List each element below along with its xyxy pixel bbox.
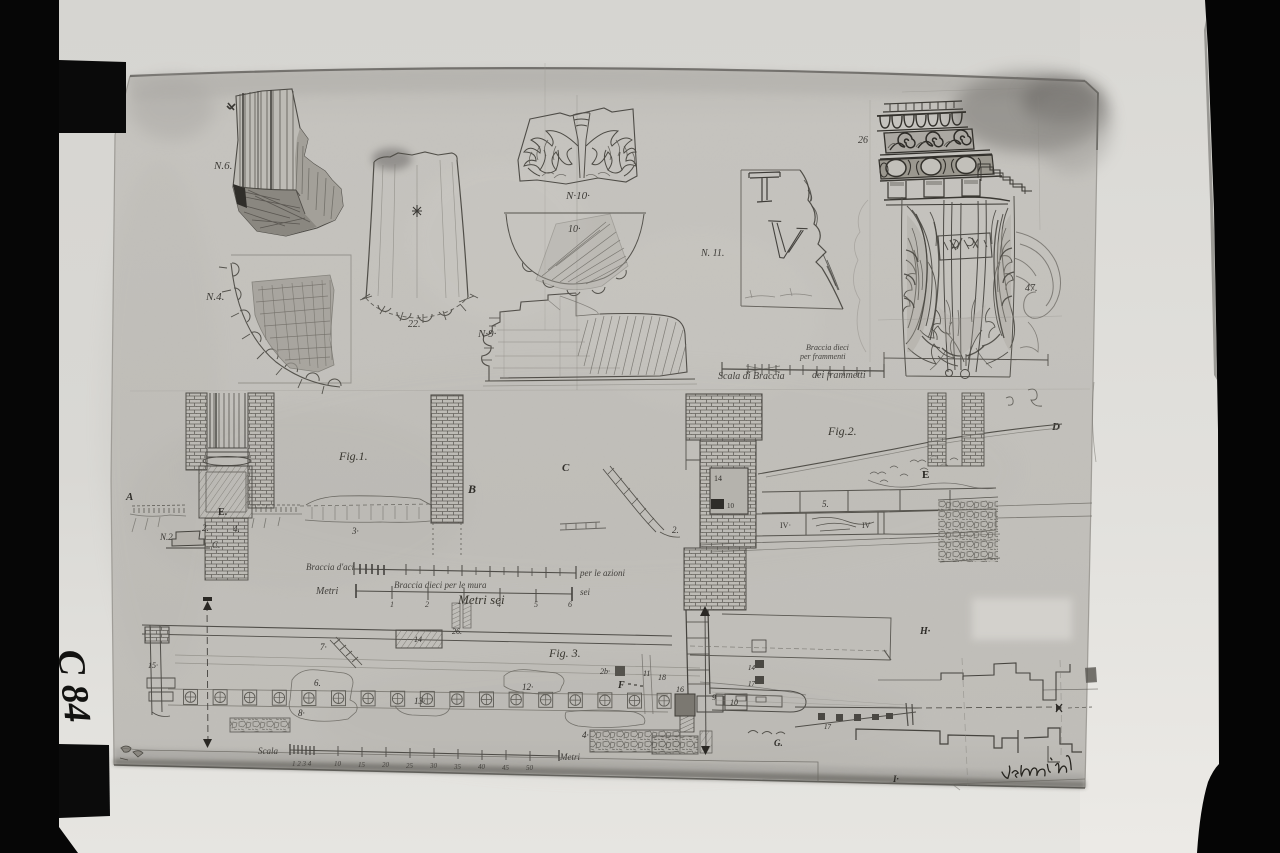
svg-text:18: 18 xyxy=(658,673,666,682)
svg-text:Fig. 3.: Fig. 3. xyxy=(548,646,581,660)
svg-text:E.: E. xyxy=(218,507,228,518)
svg-text:Scala: Scala xyxy=(258,746,278,756)
svg-text:10: 10 xyxy=(727,502,735,510)
svg-text:4: 4 xyxy=(497,600,501,609)
svg-text:10: 10 xyxy=(334,760,342,768)
svg-text:N.6.: N.6. xyxy=(213,160,232,172)
svg-text:Fig.1.: Fig.1. xyxy=(338,449,368,463)
svg-text:7·: 7· xyxy=(320,642,327,652)
svg-text:Metri: Metri xyxy=(315,586,338,597)
svg-text:50: 50 xyxy=(526,764,534,772)
svg-text:N.4.: N.4. xyxy=(205,291,224,303)
svg-text:3·: 3· xyxy=(351,526,359,536)
svg-text:Fig.2.: Fig.2. xyxy=(827,424,857,438)
svg-text:N.2: N.2 xyxy=(159,532,173,542)
svg-text:5.: 5. xyxy=(822,499,829,509)
svg-text:17: 17 xyxy=(824,723,832,731)
svg-text:6: 6 xyxy=(568,600,572,609)
svg-text:14: 14 xyxy=(714,474,722,483)
svg-text:Scala di Braccia: Scala di Braccia xyxy=(718,371,785,382)
svg-text:15: 15 xyxy=(358,761,366,769)
svg-text:Braccia dieci: Braccia dieci xyxy=(806,343,849,352)
svg-text:4.: 4. xyxy=(233,524,240,534)
svg-text:8·: 8· xyxy=(298,708,305,718)
svg-text:1: 1 xyxy=(390,600,394,609)
svg-text:Metri: Metri xyxy=(559,752,580,762)
svg-text:N·10·: N·10· xyxy=(565,190,590,202)
svg-text:15·: 15· xyxy=(148,661,158,670)
svg-text:sei: sei xyxy=(580,587,590,597)
svg-text:H·: H· xyxy=(919,626,931,637)
svg-text:5: 5 xyxy=(534,600,538,609)
svg-text:N. 11.: N. 11. xyxy=(700,248,724,259)
svg-text:30: 30 xyxy=(429,762,438,770)
svg-text:11: 11 xyxy=(643,669,650,678)
svg-text:N·9·: N·9· xyxy=(477,328,497,340)
svg-text:35: 35 xyxy=(453,763,462,771)
svg-text:dei frammetti: dei frammetti xyxy=(812,370,866,381)
svg-text:14: 14 xyxy=(414,635,422,644)
svg-text:2.: 2. xyxy=(672,525,679,535)
svg-text:IV·: IV· xyxy=(780,521,791,530)
svg-text:45: 45 xyxy=(502,764,510,772)
svg-text:per le azioni: per le azioni xyxy=(579,568,625,578)
svg-text:A: A xyxy=(125,491,133,503)
svg-text:D: D xyxy=(1051,421,1060,433)
svg-text:IV: IV xyxy=(862,521,871,530)
svg-text:E: E xyxy=(922,469,929,481)
svg-text:G.: G. xyxy=(774,738,783,748)
svg-text:16: 16 xyxy=(676,685,684,694)
svg-text:12·: 12· xyxy=(522,682,533,692)
svg-text:13·: 13· xyxy=(414,696,425,706)
svg-text:C.: C. xyxy=(212,540,220,550)
svg-text:40: 40 xyxy=(478,763,486,771)
svg-text:Braccia d'aci: Braccia d'aci xyxy=(306,562,355,572)
svg-text:per frammenti: per frammenti xyxy=(799,352,846,361)
svg-text:C 84: C 84 xyxy=(49,648,98,725)
svg-text:26: 26 xyxy=(858,135,868,146)
svg-text:Braccia dieci per le mura: Braccia dieci per le mura xyxy=(394,580,487,590)
svg-text:47.: 47. xyxy=(1025,283,1038,294)
svg-text:14: 14 xyxy=(748,664,756,672)
svg-text:I·: I· xyxy=(892,774,899,784)
svg-text:4·: 4· xyxy=(582,730,589,740)
svg-text:C: C xyxy=(562,462,570,474)
svg-text:2: 2 xyxy=(425,600,429,609)
svg-text:1 2 3 4: 1 2 3 4 xyxy=(292,760,312,768)
svg-text:9: 9 xyxy=(712,693,716,702)
svg-text:22.: 22. xyxy=(408,319,421,330)
svg-text:20: 20 xyxy=(382,761,390,769)
svg-text:6.: 6. xyxy=(314,678,321,688)
svg-text:B: B xyxy=(467,482,476,496)
svg-text:2.: 2. xyxy=(202,523,209,533)
svg-text:26.: 26. xyxy=(452,627,462,636)
svg-text:F: F xyxy=(617,680,625,691)
svg-text:25: 25 xyxy=(406,762,414,770)
svg-text:10·: 10· xyxy=(568,224,581,235)
svg-text:2b·: 2b· xyxy=(600,667,610,676)
